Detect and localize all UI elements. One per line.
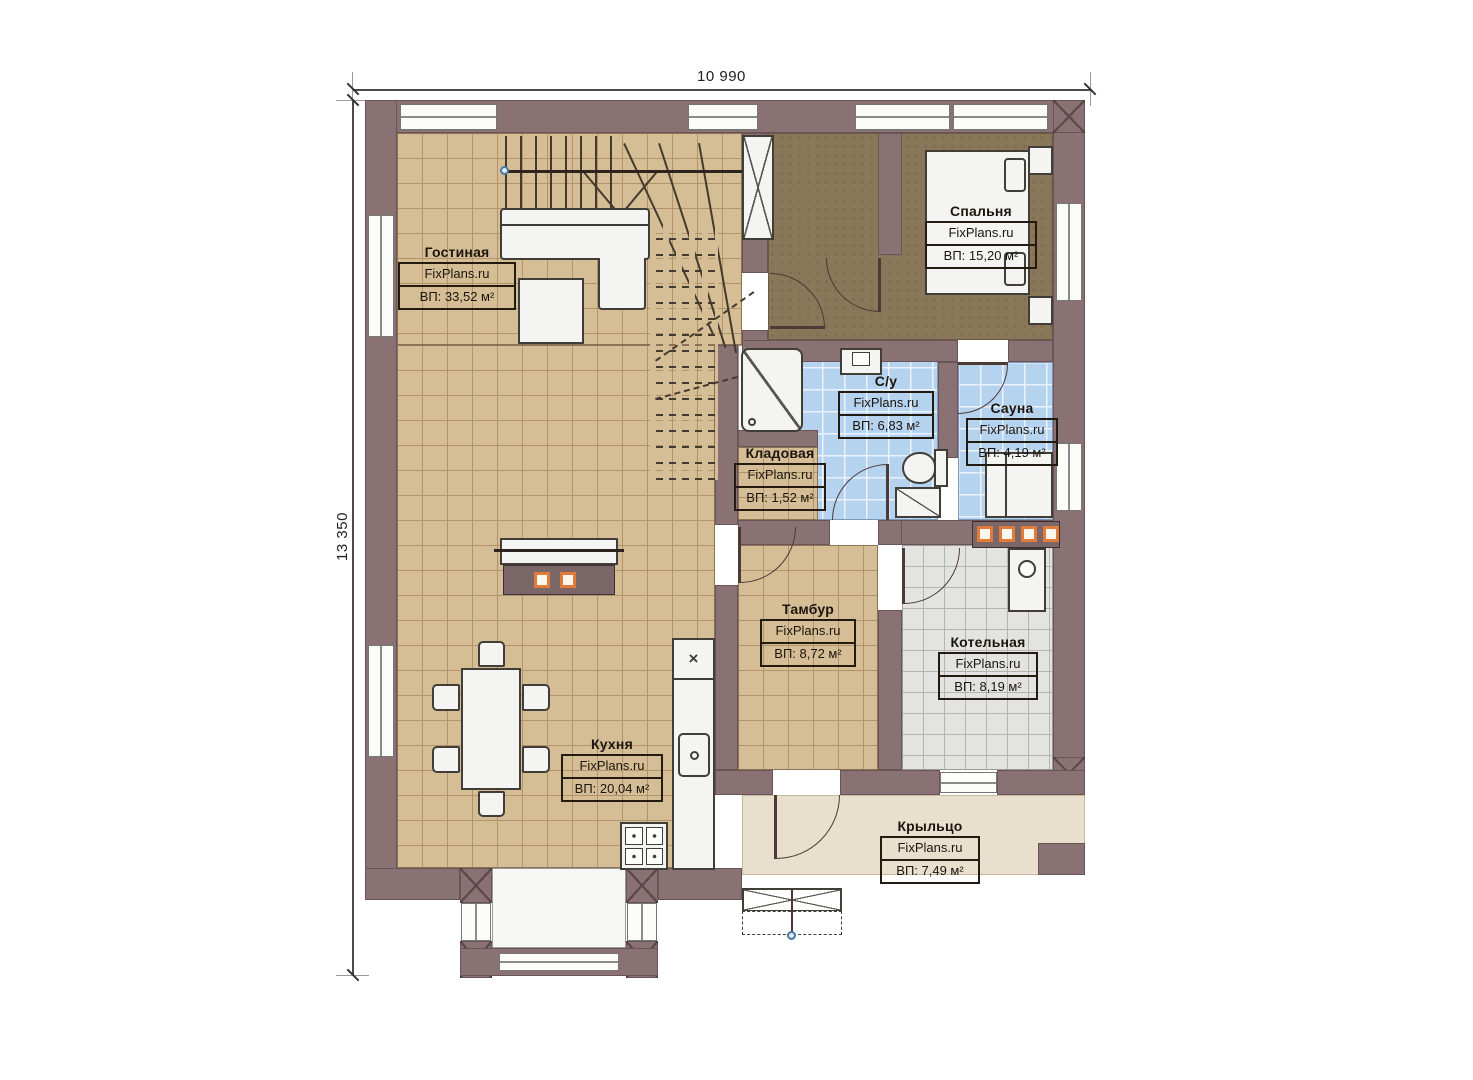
room-name: Тамбур [760, 601, 856, 617]
room-area: ВП: 4,19 м² [968, 441, 1056, 464]
kitchen-sink-drain [690, 751, 699, 760]
coffee-table [518, 278, 584, 344]
porch-step-divider [791, 888, 793, 935]
wall-hall-sauna [1008, 340, 1053, 362]
fireplace-firebox [503, 565, 615, 595]
room-area: ВП: 6,83 м² [840, 414, 932, 437]
window-left-dining [368, 645, 394, 757]
room-label-bathroom: С/у FixPlans.ru ВП: 6,83 м² [838, 373, 934, 439]
dining-chair [478, 641, 505, 667]
wall-kitchen-vestibule-low [715, 585, 738, 770]
watermark: FixPlans.ru [840, 393, 932, 414]
dining-chair [432, 684, 460, 711]
hood-icon: × [672, 638, 715, 680]
dimension-height-label: 13 350 [334, 512, 351, 561]
room-name: Кухня [561, 736, 663, 752]
vestibule-door-leaf [738, 527, 741, 583]
washing-machine [895, 487, 941, 518]
watermark: FixPlans.ru [882, 838, 978, 859]
dining-chair [478, 791, 505, 817]
room-label-vestibule: Тамбур FixPlans.ru ВП: 8,72 м² [760, 601, 856, 667]
stairs-railing [506, 170, 762, 173]
pillow [1004, 158, 1026, 192]
room-name: Гостиная [398, 244, 516, 260]
dining-chair [522, 746, 550, 773]
room-label-living: Гостиная FixPlans.ru ВП: 33,52 м² [398, 244, 516, 310]
window-top-bedroom-1 [855, 104, 950, 130]
sauna-stone [1043, 526, 1059, 542]
sauna-stone [977, 526, 993, 542]
wall-porch-top-2 [840, 770, 940, 795]
dining-chair [522, 684, 550, 711]
room-name: Сауна [966, 400, 1058, 416]
stove-burner [625, 827, 643, 845]
boiler-door-leaf [902, 548, 905, 604]
sauna-door-leaf [958, 362, 1008, 365]
room-area: ВП: 33,52 м² [400, 285, 514, 308]
wall-porch-top-1 [715, 770, 773, 795]
dimension-line-top [352, 89, 1092, 91]
room-area: ВП: 1,52 м² [736, 486, 824, 509]
window-right-bedroom [1056, 203, 1082, 301]
room-name: Кладовая [734, 445, 826, 461]
boiler [1008, 548, 1046, 612]
window-right-sauna [1056, 443, 1082, 511]
stairs-start-marker [500, 166, 509, 175]
sofa-chaise [598, 258, 646, 310]
room-name: Крыльцо [880, 818, 980, 834]
watermark: FixPlans.ru [927, 223, 1035, 244]
sauna-stone [999, 526, 1015, 542]
room-area: ВП: 8,72 м² [762, 642, 854, 665]
room-label-boiler: Котельная FixPlans.ru ВП: 8,19 м² [938, 634, 1038, 700]
bay-window-right [627, 903, 657, 941]
room-area: ВП: 7,49 м² [882, 859, 978, 882]
wall-bedroom-partition [878, 133, 902, 255]
stove-burner [625, 848, 643, 866]
bay-window-front [499, 953, 619, 971]
bathroom-door-leaf [886, 464, 889, 520]
stove [620, 822, 668, 870]
bay-pylon-right-top [626, 868, 658, 903]
dining-table [461, 668, 521, 790]
wall-bottom-mid [658, 868, 742, 900]
room-name: Котельная [938, 634, 1038, 650]
bedroom-door-leaf [878, 258, 881, 312]
bay-pylon-left-top [460, 868, 492, 903]
room-label-bedroom: Спальня FixPlans.ru ВП: 15,20 м² [925, 203, 1037, 269]
toilet-tank [934, 449, 948, 487]
stove-burner [646, 848, 664, 866]
watermark: FixPlans.ru [400, 264, 514, 285]
dimension-width-label: 10 990 [697, 68, 746, 85]
fireplace-vent [560, 572, 576, 588]
entrance-door-leaf [774, 795, 777, 859]
floor-bay-window [492, 868, 626, 948]
bay-window-left [461, 903, 491, 941]
porch-column [1038, 843, 1085, 875]
toilet-bowl [902, 452, 936, 484]
dimension-line-left [352, 100, 354, 975]
wall-vestibule-boiler-top [878, 520, 902, 545]
window-vestibule-porch [940, 772, 997, 793]
wall-bath-sauna [938, 362, 958, 458]
window-top-living [400, 104, 497, 130]
wall-bottom-left [365, 868, 460, 900]
dining-chair [432, 746, 460, 773]
room-label-porch: Крыльцо FixPlans.ru ВП: 7,49 м² [880, 818, 980, 884]
room-name: С/у [838, 373, 934, 389]
fireplace-vent [534, 572, 550, 588]
room-label-kitchen: Кухня FixPlans.ru ВП: 20,04 м² [561, 736, 663, 802]
boiler-dial [1018, 560, 1036, 578]
floor-plan: 10 990 13 350 [0, 0, 1473, 1080]
fireplace-line [494, 549, 624, 552]
nightstand [1028, 296, 1053, 325]
shower-drain [748, 418, 756, 426]
sofa [500, 208, 650, 260]
stairs-upper-flight-dashed [650, 225, 718, 480]
wall-corner-top-right [1053, 100, 1085, 133]
window-top-bedroom-2 [953, 104, 1048, 130]
hall-door-leaf [770, 326, 825, 329]
room-area: ВП: 20,04 м² [563, 777, 661, 800]
stove-burner [646, 827, 664, 845]
nightstand [1028, 146, 1053, 175]
room-name: Спальня [925, 203, 1037, 219]
bathroom-sink-bowl [852, 352, 870, 366]
watermark: FixPlans.ru [736, 465, 824, 486]
watermark: FixPlans.ru [940, 654, 1036, 675]
step-marker [787, 931, 796, 940]
watermark: FixPlans.ru [563, 756, 661, 777]
room-label-storage: Кладовая FixPlans.ru ВП: 1,52 м² [734, 445, 826, 511]
wardrobe [742, 135, 774, 240]
window-left-living [368, 215, 394, 337]
room-area: ВП: 15,20 м² [927, 244, 1035, 267]
stairs-straight-flight [505, 136, 625, 216]
sauna-stone [1021, 526, 1037, 542]
watermark: FixPlans.ru [762, 621, 854, 642]
room-label-sauna: Сауна FixPlans.ru ВП: 4,19 м² [966, 400, 1058, 466]
watermark: FixPlans.ru [968, 420, 1056, 441]
window-top-stairs [688, 104, 758, 130]
room-area: ВП: 8,19 м² [940, 675, 1036, 698]
wall-porch-top-3 [997, 770, 1085, 795]
wall-vestibule-boiler [878, 610, 902, 770]
